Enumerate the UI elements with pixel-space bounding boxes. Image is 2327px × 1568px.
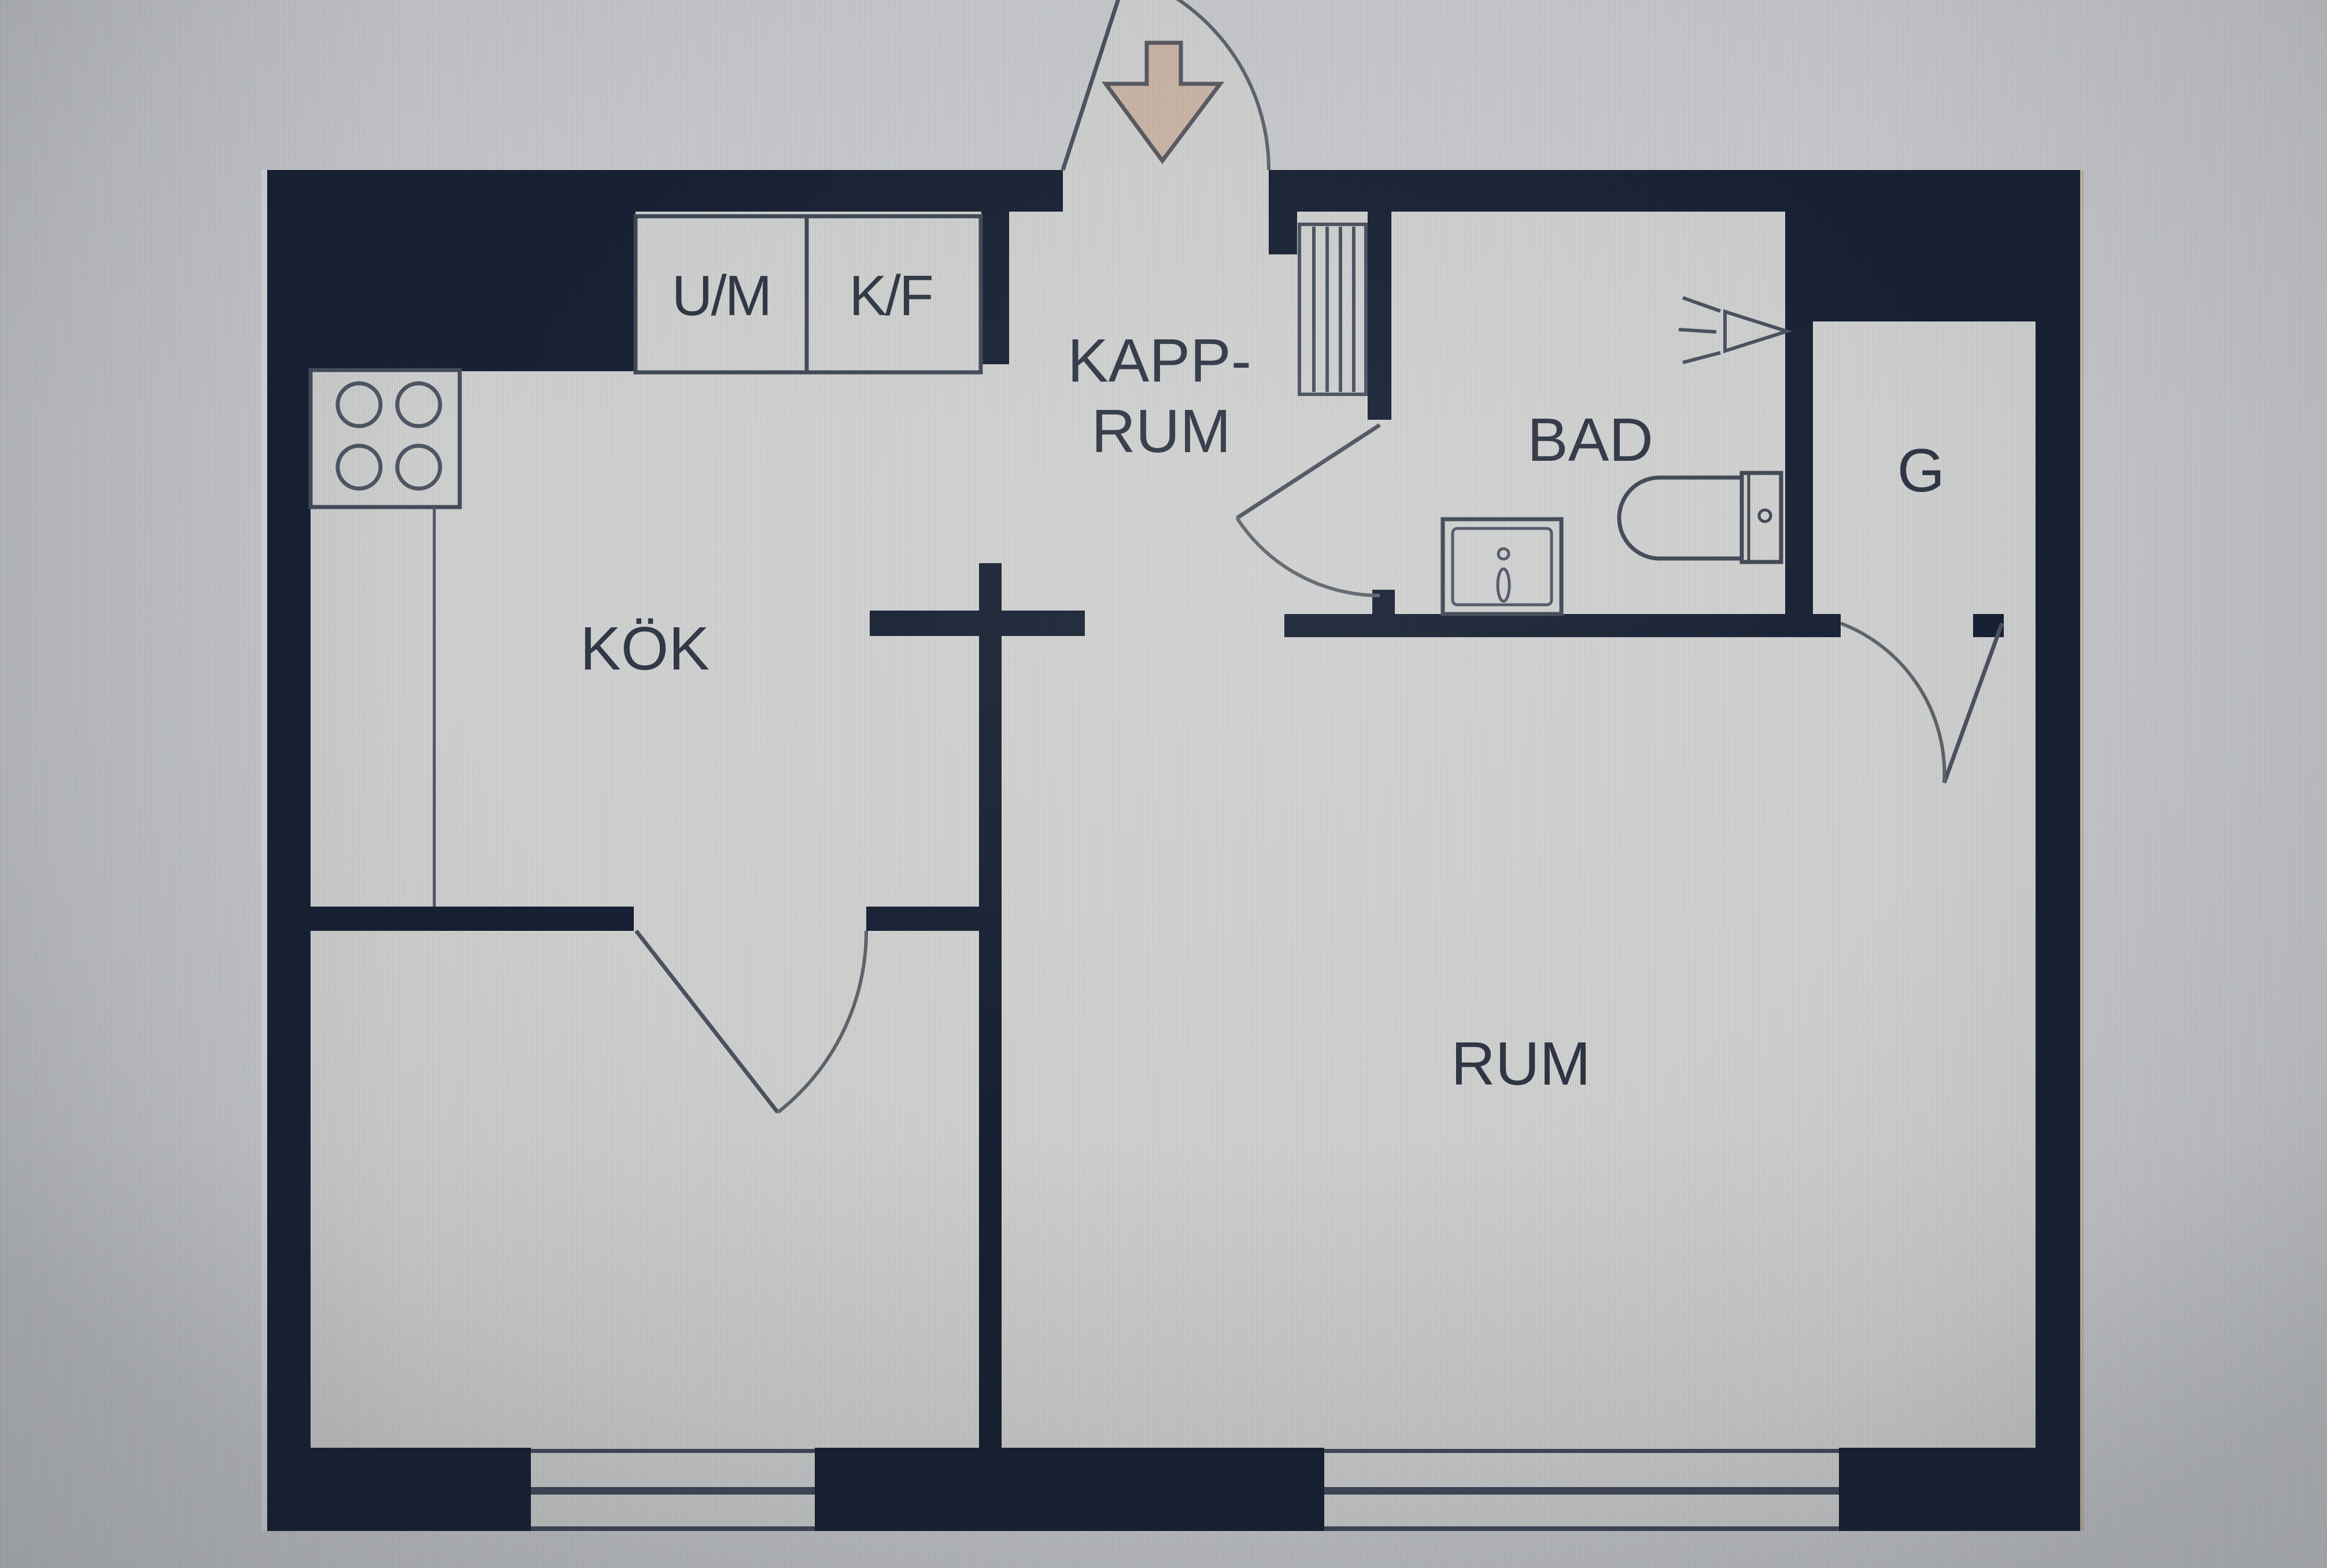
svg-text:U/M: U/M — [672, 264, 771, 327]
svg-text:G: G — [1897, 437, 1945, 505]
svg-text:RUM: RUM — [1451, 1030, 1590, 1098]
svg-text:KAPP-: KAPP- — [1068, 327, 1251, 395]
svg-text:KÖK: KÖK — [580, 615, 710, 683]
svg-text:K/F: K/F — [849, 264, 932, 327]
svg-text:BAD: BAD — [1527, 406, 1653, 474]
svg-text:RUM: RUM — [1091, 397, 1231, 465]
